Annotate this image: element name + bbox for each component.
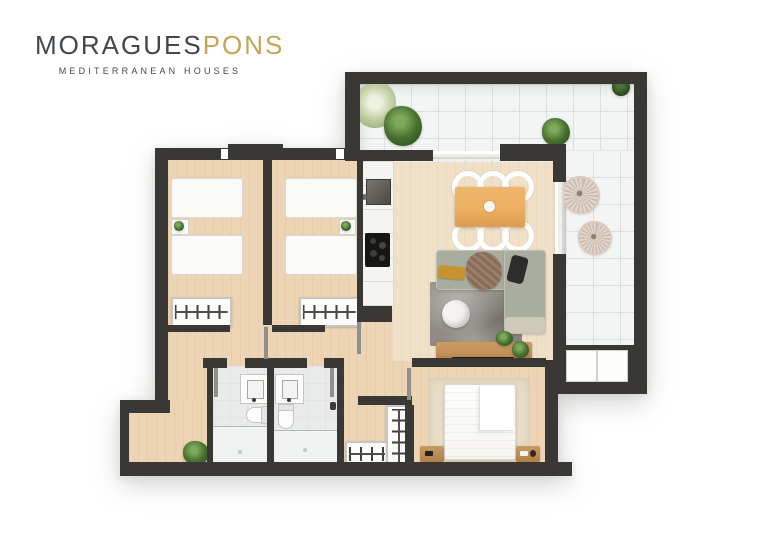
wall-master-right: [545, 360, 558, 462]
shower-drain-icon: [303, 448, 307, 452]
wall-top-pillar: [228, 144, 283, 160]
plant-console-icon: [496, 331, 513, 346]
terrace-plant-green-icon: [384, 106, 422, 146]
apartment-floor-plan: [0, 0, 780, 553]
vanity-bathroom-1: [240, 374, 270, 404]
plant-nightstand-2-icon: [341, 221, 351, 231]
wall-living-right-lower: [553, 254, 566, 362]
wall-left-step: [120, 400, 170, 413]
sink-basin-icon: [247, 380, 264, 399]
bench-unit: [566, 350, 597, 382]
wall-closet-top: [358, 396, 412, 405]
burner-icon: [370, 238, 376, 244]
window-slit-2: [336, 149, 344, 159]
floor-plan-render: MORAGUESPONS MEDITERRANEAN HOUSES: [0, 0, 780, 553]
terrace-storage-bench: [566, 350, 628, 380]
bed-single-2a: [285, 178, 357, 218]
wall-bottom: [120, 462, 572, 476]
coffee-table: [442, 300, 470, 328]
sofa-pillow-mustard: [437, 265, 465, 280]
wardrobe-rack-bedroom-2: [299, 297, 360, 327]
sliding-door-terrace-top: [433, 151, 500, 159]
terrace-plant-small-icon: [542, 118, 570, 146]
master-bed-folded-linen: [479, 386, 513, 431]
door-master-bedroom: [407, 368, 411, 400]
book-icon: [520, 451, 528, 456]
master-nightstand-right: [516, 446, 540, 462]
rack-rail: [303, 304, 355, 320]
wall-bathroom-divider: [267, 364, 274, 462]
master-nightstand-left: [420, 446, 444, 462]
wall-bathroom-1-left: [207, 358, 213, 462]
faucet-icon: [252, 398, 256, 402]
bed-single-2b: [285, 235, 357, 275]
kitchen-sink-unit: [366, 179, 391, 205]
dining-table: [455, 187, 525, 227]
wicker-chair-1: [562, 176, 600, 214]
burner-icon: [379, 255, 385, 261]
sofa-seat-blanket: [505, 317, 545, 333]
wall-left-upper: [155, 148, 168, 401]
sink-basin-icon: [282, 380, 298, 399]
shower-2: [274, 430, 337, 463]
wall-kitchen-side: [357, 160, 363, 308]
door-bedroom-1: [264, 327, 268, 359]
wall-bedroom-divider: [263, 160, 272, 325]
shower-head-icon: [330, 402, 336, 410]
plant-nightstand-1-icon: [174, 221, 184, 231]
door-bathroom-1: [214, 368, 218, 397]
wall-terrace-left: [345, 72, 360, 161]
table-centerpiece-icon: [484, 201, 495, 212]
wall-living-right-upper: [553, 161, 566, 182]
wall-terrace-top: [345, 72, 647, 84]
bed-single-1b: [171, 235, 243, 275]
clock-icon: [425, 451, 433, 456]
wall-kitchen-bottom: [357, 306, 392, 322]
sliding-door-terrace-side: [555, 182, 564, 254]
wall-bathroom-2-right: [337, 364, 344, 462]
wall-master-left: [405, 405, 414, 462]
faucet-icon: [287, 398, 291, 402]
toilet-bathroom-2: [278, 410, 294, 429]
decor-icon: [530, 450, 536, 457]
plant-console-icon-2: [512, 341, 529, 358]
wall-living-terrace-right: [500, 144, 566, 161]
toilet-tank-2: [278, 404, 294, 411]
bed-single-1a: [171, 178, 243, 218]
shower-drain-icon: [238, 450, 242, 454]
kitchen-cooktop: [365, 233, 390, 267]
door-bedroom-2: [357, 322, 361, 354]
burner-icon: [379, 242, 386, 249]
wall-bedroom-2-bottom: [272, 325, 325, 332]
wall-bedroom-1-bottom: [168, 325, 230, 332]
burner-icon: [370, 250, 377, 257]
window-slit-1: [221, 149, 228, 159]
wardrobe-rack-bedroom-1: [171, 297, 232, 327]
wall-living-master: [412, 358, 546, 367]
door-bathroom-2: [330, 368, 334, 397]
sofa-throw-blanket: [466, 252, 502, 290]
rack-rail: [349, 446, 386, 462]
wall-bath-top-b: [245, 358, 307, 368]
wicker-chair-2: [578, 221, 612, 255]
vanity-bathroom-2: [275, 374, 304, 404]
bench-unit: [597, 350, 628, 382]
shower-1: [213, 426, 267, 463]
rack-rail: [175, 304, 227, 320]
